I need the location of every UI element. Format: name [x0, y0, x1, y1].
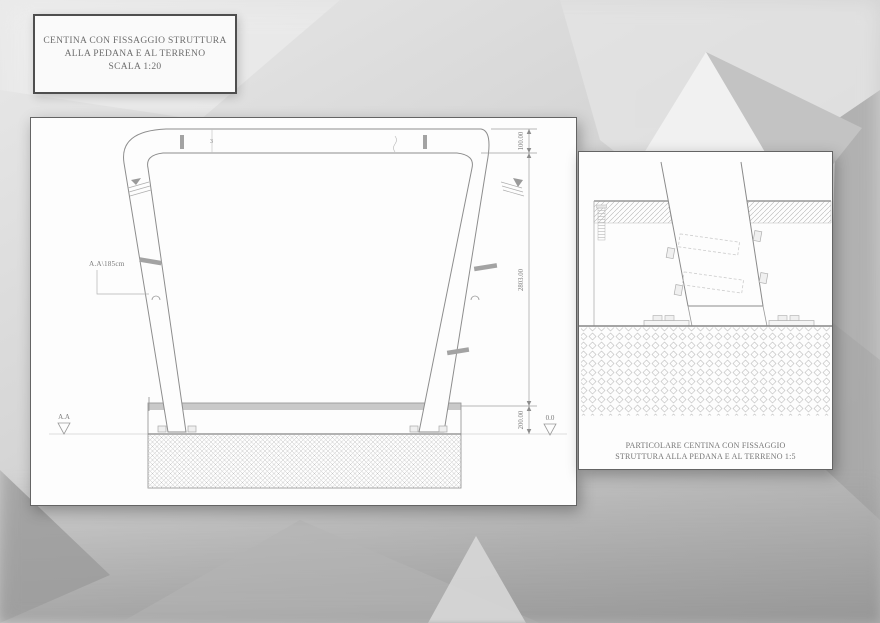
deck-band-right — [747, 201, 831, 223]
section-leader-line — [97, 270, 149, 294]
level-marker-left: A.A — [58, 413, 70, 434]
level-right-triangle — [544, 424, 556, 435]
leg-tube — [661, 162, 767, 326]
detail-caption-line-1: PARTICOLARE CENTINA CON FISSAGGIO — [579, 440, 832, 451]
pedana-deck-band — [148, 403, 461, 410]
stub-right — [763, 306, 767, 326]
dim-height: 2803.00 — [518, 268, 525, 291]
top-plate-left — [180, 135, 184, 149]
level-marker-right: 0.0 — [544, 414, 556, 435]
detail-caption-line-2: STRUTTURA ALLA PEDANA E AL TERRENO 1:5 — [579, 451, 832, 462]
base-plate-left — [644, 321, 689, 327]
title-line-3: SCALA 1:20 — [35, 61, 235, 74]
centina-elevation-drawing: 3 A.A\185cm A.A — [31, 118, 576, 505]
top-plate-right — [423, 135, 427, 149]
centina-frame — [124, 129, 489, 432]
level-right-label: 0.0 — [546, 414, 555, 422]
weld-symbol-right — [501, 178, 524, 196]
dim-base: 200.00 — [518, 410, 525, 429]
anchor-screw-head — [597, 205, 607, 208]
base-plate-right — [769, 321, 814, 327]
title-line-2: ALLA PEDANA E AL TERRENO — [35, 48, 235, 61]
detail-drawing-panel: PARTICOLARE CENTINA CON FISSAGGIO STRUTT… — [578, 151, 833, 470]
right-leg-plate — [474, 263, 497, 271]
title-line-1: CENTINA CON FISSAGGIO STRUTTURA — [35, 35, 235, 48]
foot-base-plates — [158, 426, 447, 432]
deck-band-left — [594, 201, 672, 223]
section-label-group: A.A\185cm — [89, 260, 149, 294]
fixing-detail-drawing — [579, 152, 832, 437]
anchor-bolts — [653, 316, 799, 321]
right-leg-joint — [471, 296, 479, 300]
level-left-label: A.A — [58, 413, 70, 421]
title-box: CENTINA CON FISSAGGIO STRUTTURA ALLA PED… — [33, 14, 237, 94]
dim-tube-width: 100.00 — [518, 131, 525, 150]
pedana-platform — [148, 397, 461, 488]
joint-mark-label: 3 — [210, 139, 213, 145]
pedana-hatch-fill — [149, 435, 461, 488]
detail-caption: PARTICOLARE CENTINA CON FISSAGGIO STRUTT… — [579, 440, 832, 462]
ground-fixing — [579, 316, 832, 416]
ground-fill — [581, 328, 830, 416]
level-left-triangle — [58, 423, 70, 434]
anchor-screw — [598, 208, 605, 240]
section-label: A.A\185cm — [89, 260, 125, 268]
main-drawing-panel: 3 A.A\185cm A.A — [30, 117, 577, 506]
